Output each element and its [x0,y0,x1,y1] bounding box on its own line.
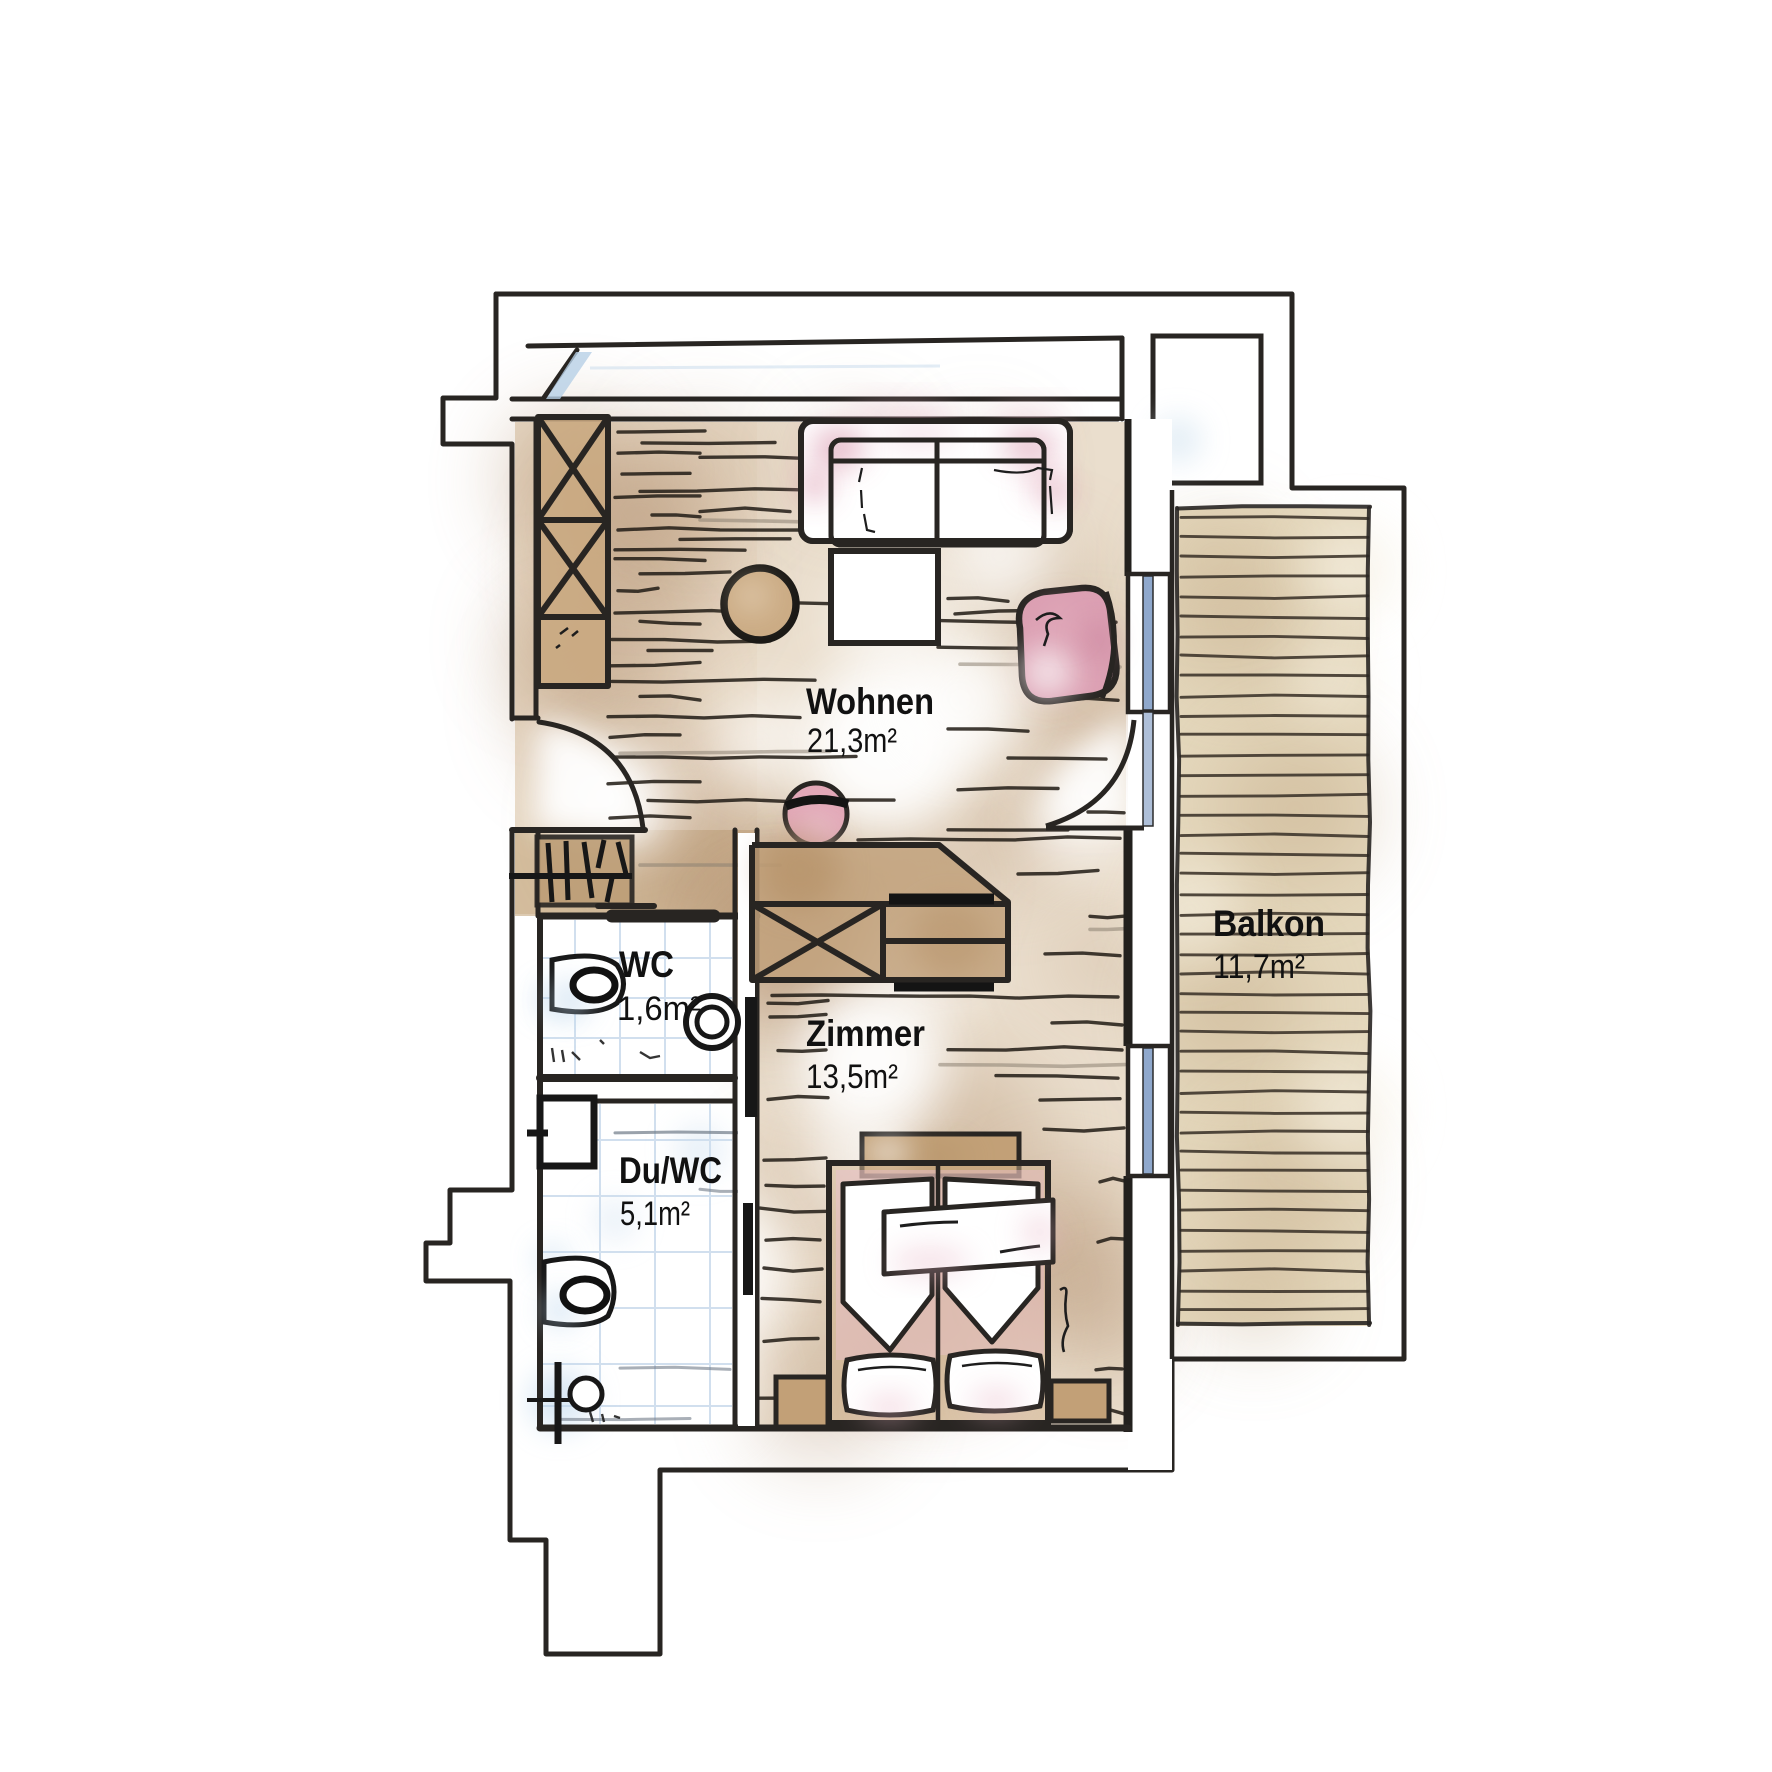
svg-text:21,3m²: 21,3m² [807,722,897,760]
svg-text:5,1m²: 5,1m² [620,1195,690,1233]
svg-text:13,5m²: 13,5m² [806,1058,898,1096]
svg-text:Wohnen: Wohnen [806,681,934,722]
svg-text:Balkon: Balkon [1213,903,1325,944]
svg-text:Zimmer: Zimmer [806,1013,925,1054]
svg-text:11,7m²: 11,7m² [1213,948,1305,986]
svg-text:Du/WC: Du/WC [619,1150,722,1191]
svg-text:WC: WC [619,944,674,985]
svg-text:1,6m²: 1,6m² [617,990,701,1028]
